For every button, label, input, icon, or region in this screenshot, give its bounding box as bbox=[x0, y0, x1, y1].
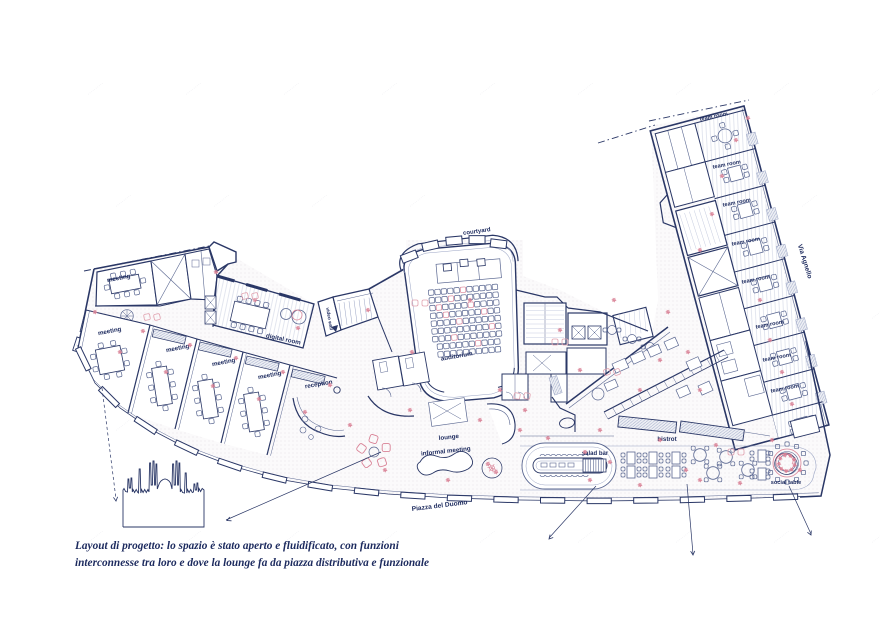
svg-text:interconnesse tra loro e dove: interconnesse tra loro e dove la lounge … bbox=[75, 557, 429, 569]
svg-text:Layout di progetto: lo spazio: Layout di progetto: lo spazio è stato ap… bbox=[74, 540, 400, 552]
svg-text:salad bar: salad bar bbox=[582, 451, 609, 457]
svg-text:social table: social table bbox=[771, 480, 801, 486]
